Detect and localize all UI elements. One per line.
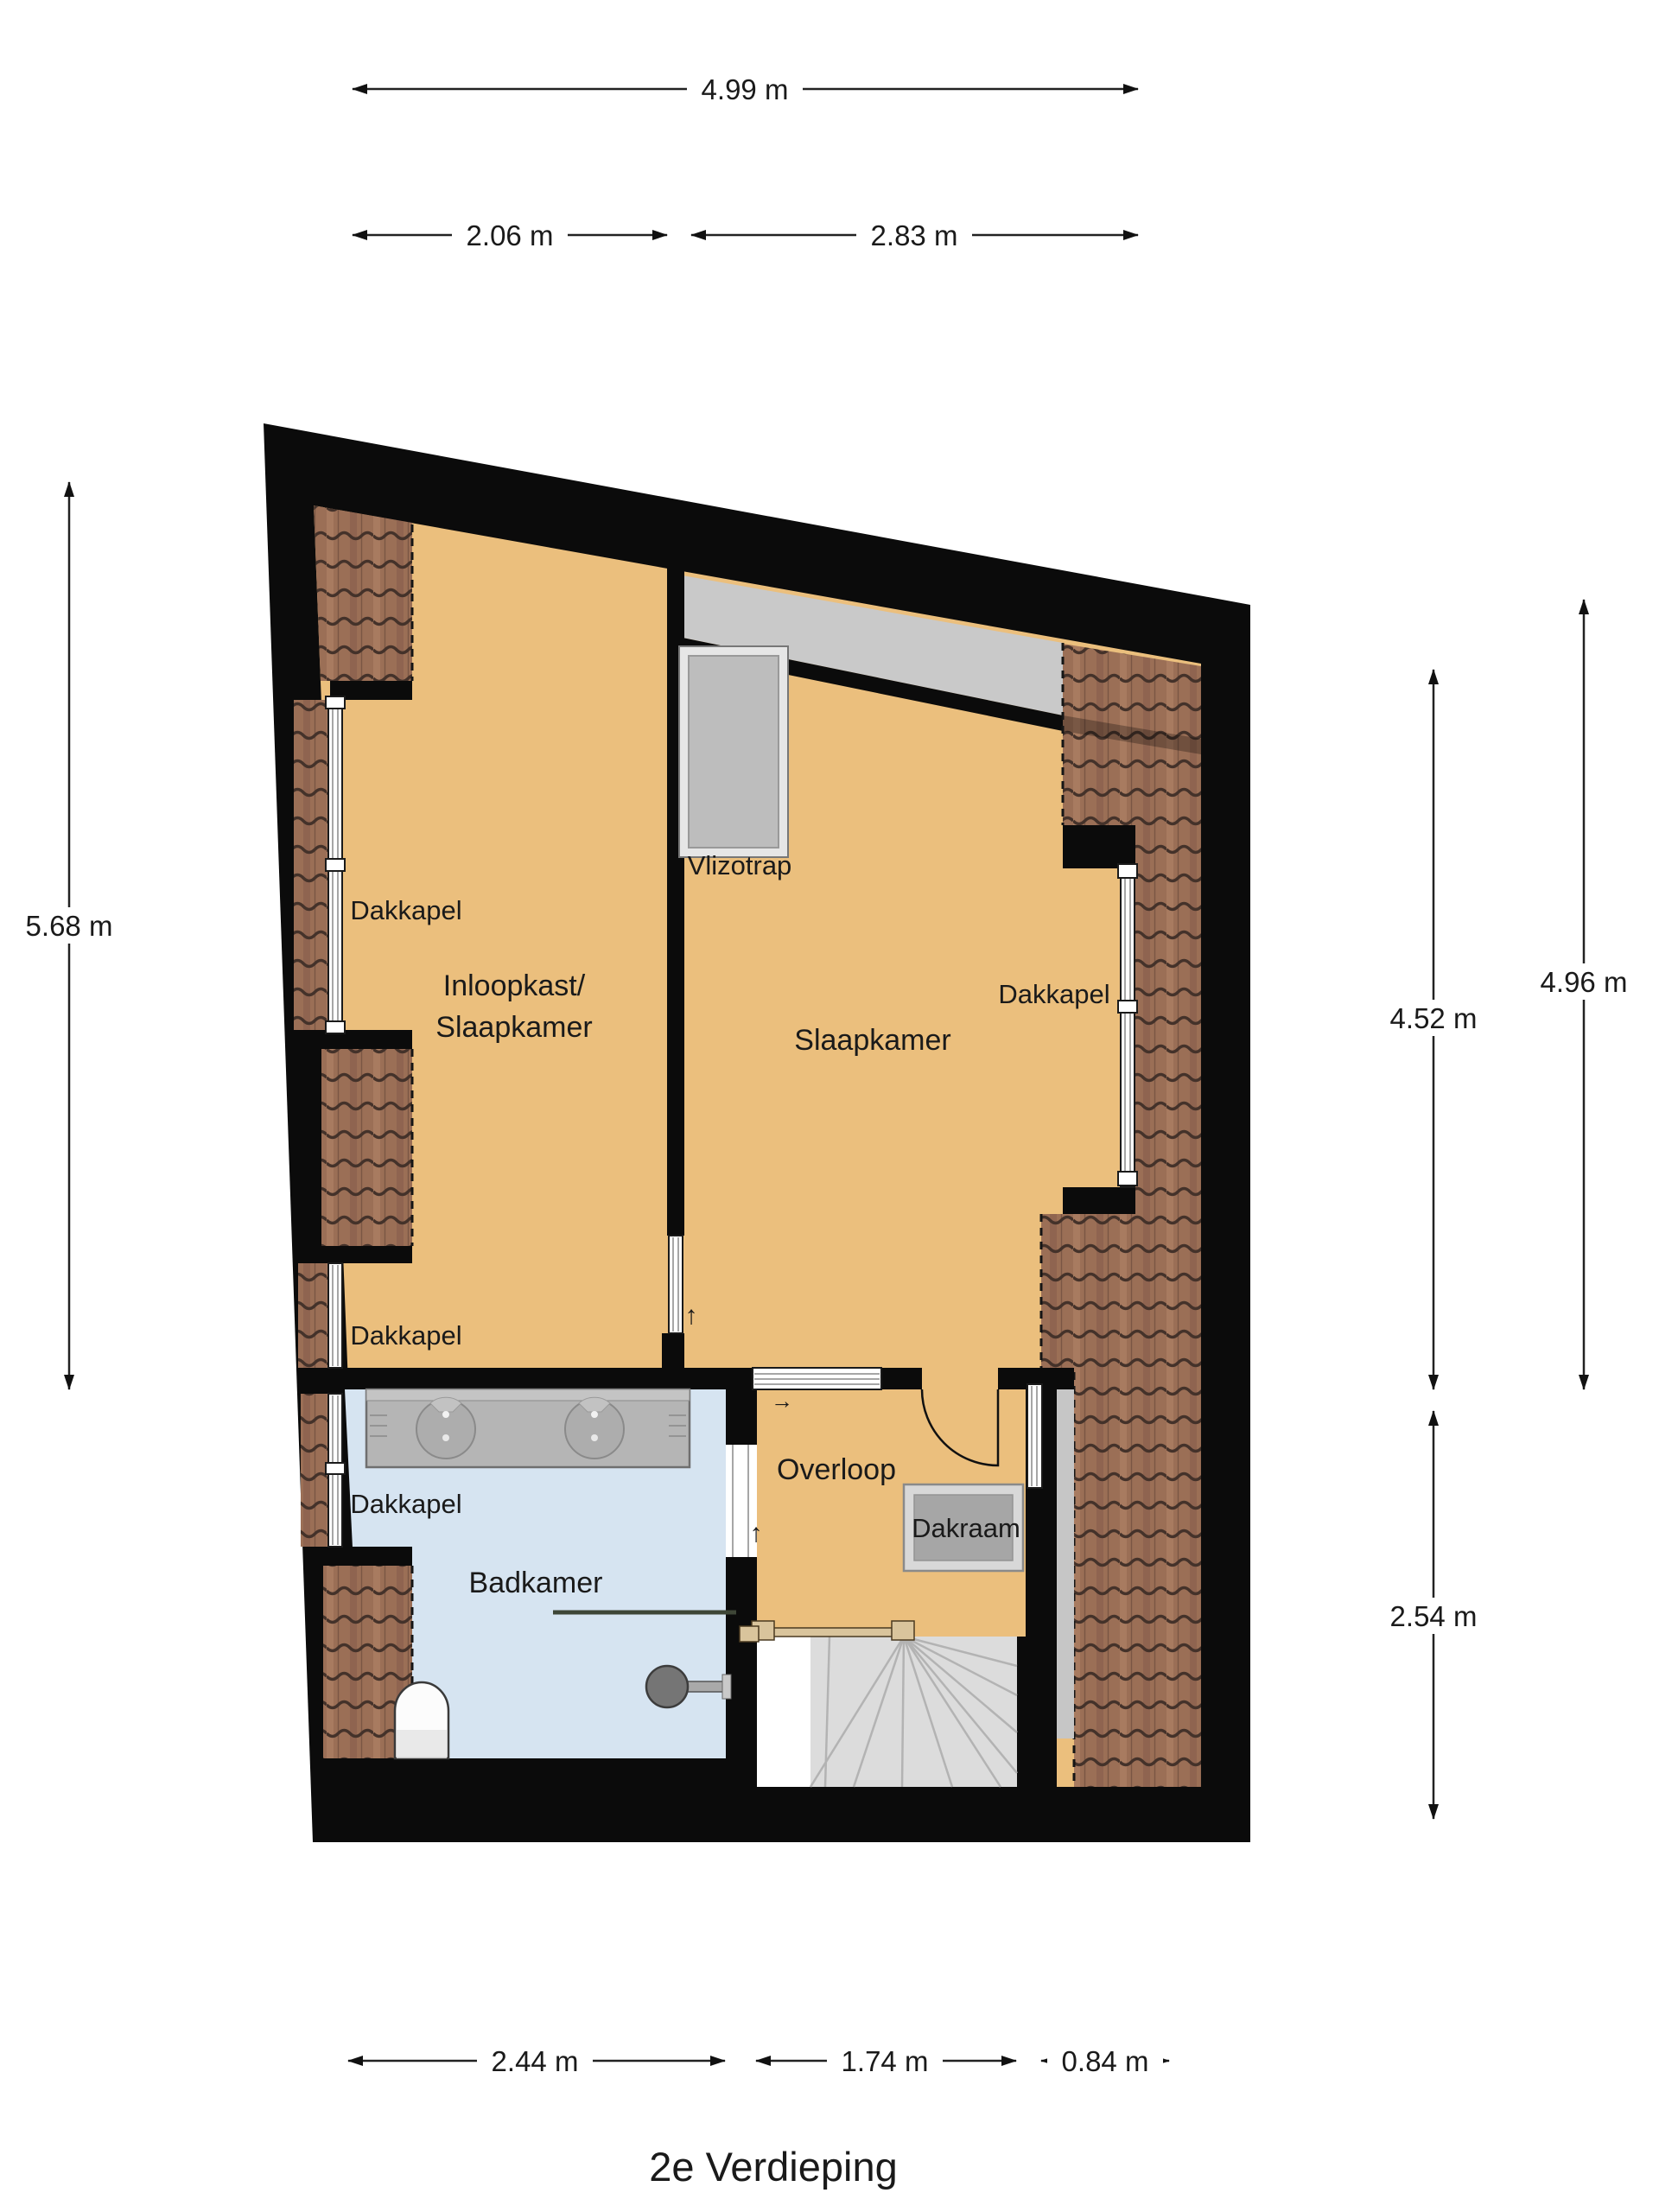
dim-bottom-right: 0.84 m: [1062, 2045, 1149, 2077]
window-dakkapel-left-top: [326, 696, 345, 1033]
dim-top-total: 4.99 m: [702, 73, 789, 105]
label-dakkapel-right: Dakkapel: [998, 979, 1109, 1009]
wall-bedroom-bathroom: [345, 1368, 753, 1389]
dim-right-outer: 4.96 m: [1541, 966, 1628, 998]
window-overloop-top: [753, 1368, 881, 1389]
label-dakraam: Dakraam: [912, 1513, 1020, 1543]
floorplan-canvas: Inloopkast/ Slaapkamer Slaapkamer Badkam…: [0, 0, 1659, 2212]
dim-right-inner: 4.52 m: [1390, 1002, 1478, 1034]
stairs-landing: [757, 1637, 810, 1787]
vanity-double-sink: [366, 1389, 690, 1467]
window-dakkapel-badkamer: [326, 1394, 345, 1547]
vlizotrap-hatch: [679, 646, 788, 857]
label-inloopkast-line2: Slaapkamer: [435, 1011, 592, 1044]
shower-head: [646, 1666, 688, 1707]
dim-bottom-left: 2.44 m: [492, 2045, 579, 2077]
stairs: [740, 1621, 1017, 1787]
dim-top-left: 2.06 m: [467, 219, 554, 251]
toilet: [395, 1682, 448, 1758]
window-dakkapel-right: [1118, 864, 1137, 1187]
label-vlizotrap: Vlizotrap: [688, 850, 792, 880]
label-overloop: Overloop: [777, 1453, 896, 1486]
door-direction-arrow-icon: →: [771, 1388, 793, 1414]
floorplan-page: Inloopkast/ Slaapkamer Slaapkamer Badkam…: [0, 0, 1659, 2212]
label-dakkapel-left-bottom: Dakkapel: [350, 1489, 461, 1519]
window-overloop-right: [1027, 1384, 1042, 1488]
window-dakkapel-left-mid: [328, 1263, 342, 1368]
floor-title: 2e Verdieping: [649, 2144, 897, 2190]
label-badkamer: Badkamer: [469, 1567, 603, 1599]
stairs-up-arrow-icon: ↑: [750, 1519, 763, 1548]
window-bedroom-divider: [669, 1236, 683, 1333]
label-dakkapel-left-mid: Dakkapel: [350, 1320, 461, 1351]
dim-right-lower: 2.54 m: [1390, 1600, 1478, 1632]
dim-bottom-middle: 1.74 m: [842, 2045, 929, 2077]
bedroom-door-arrow-icon: ↑: [685, 1301, 698, 1330]
dim-top-right: 2.83 m: [871, 219, 958, 251]
label-slaapkamer: Slaapkamer: [794, 1024, 950, 1057]
dim-left-height: 5.68 m: [26, 910, 113, 942]
label-dakkapel-left-top: Dakkapel: [350, 895, 461, 925]
stair-rail: [757, 1628, 904, 1637]
label-inloopkast-line1: Inloopkast/: [443, 969, 586, 1002]
